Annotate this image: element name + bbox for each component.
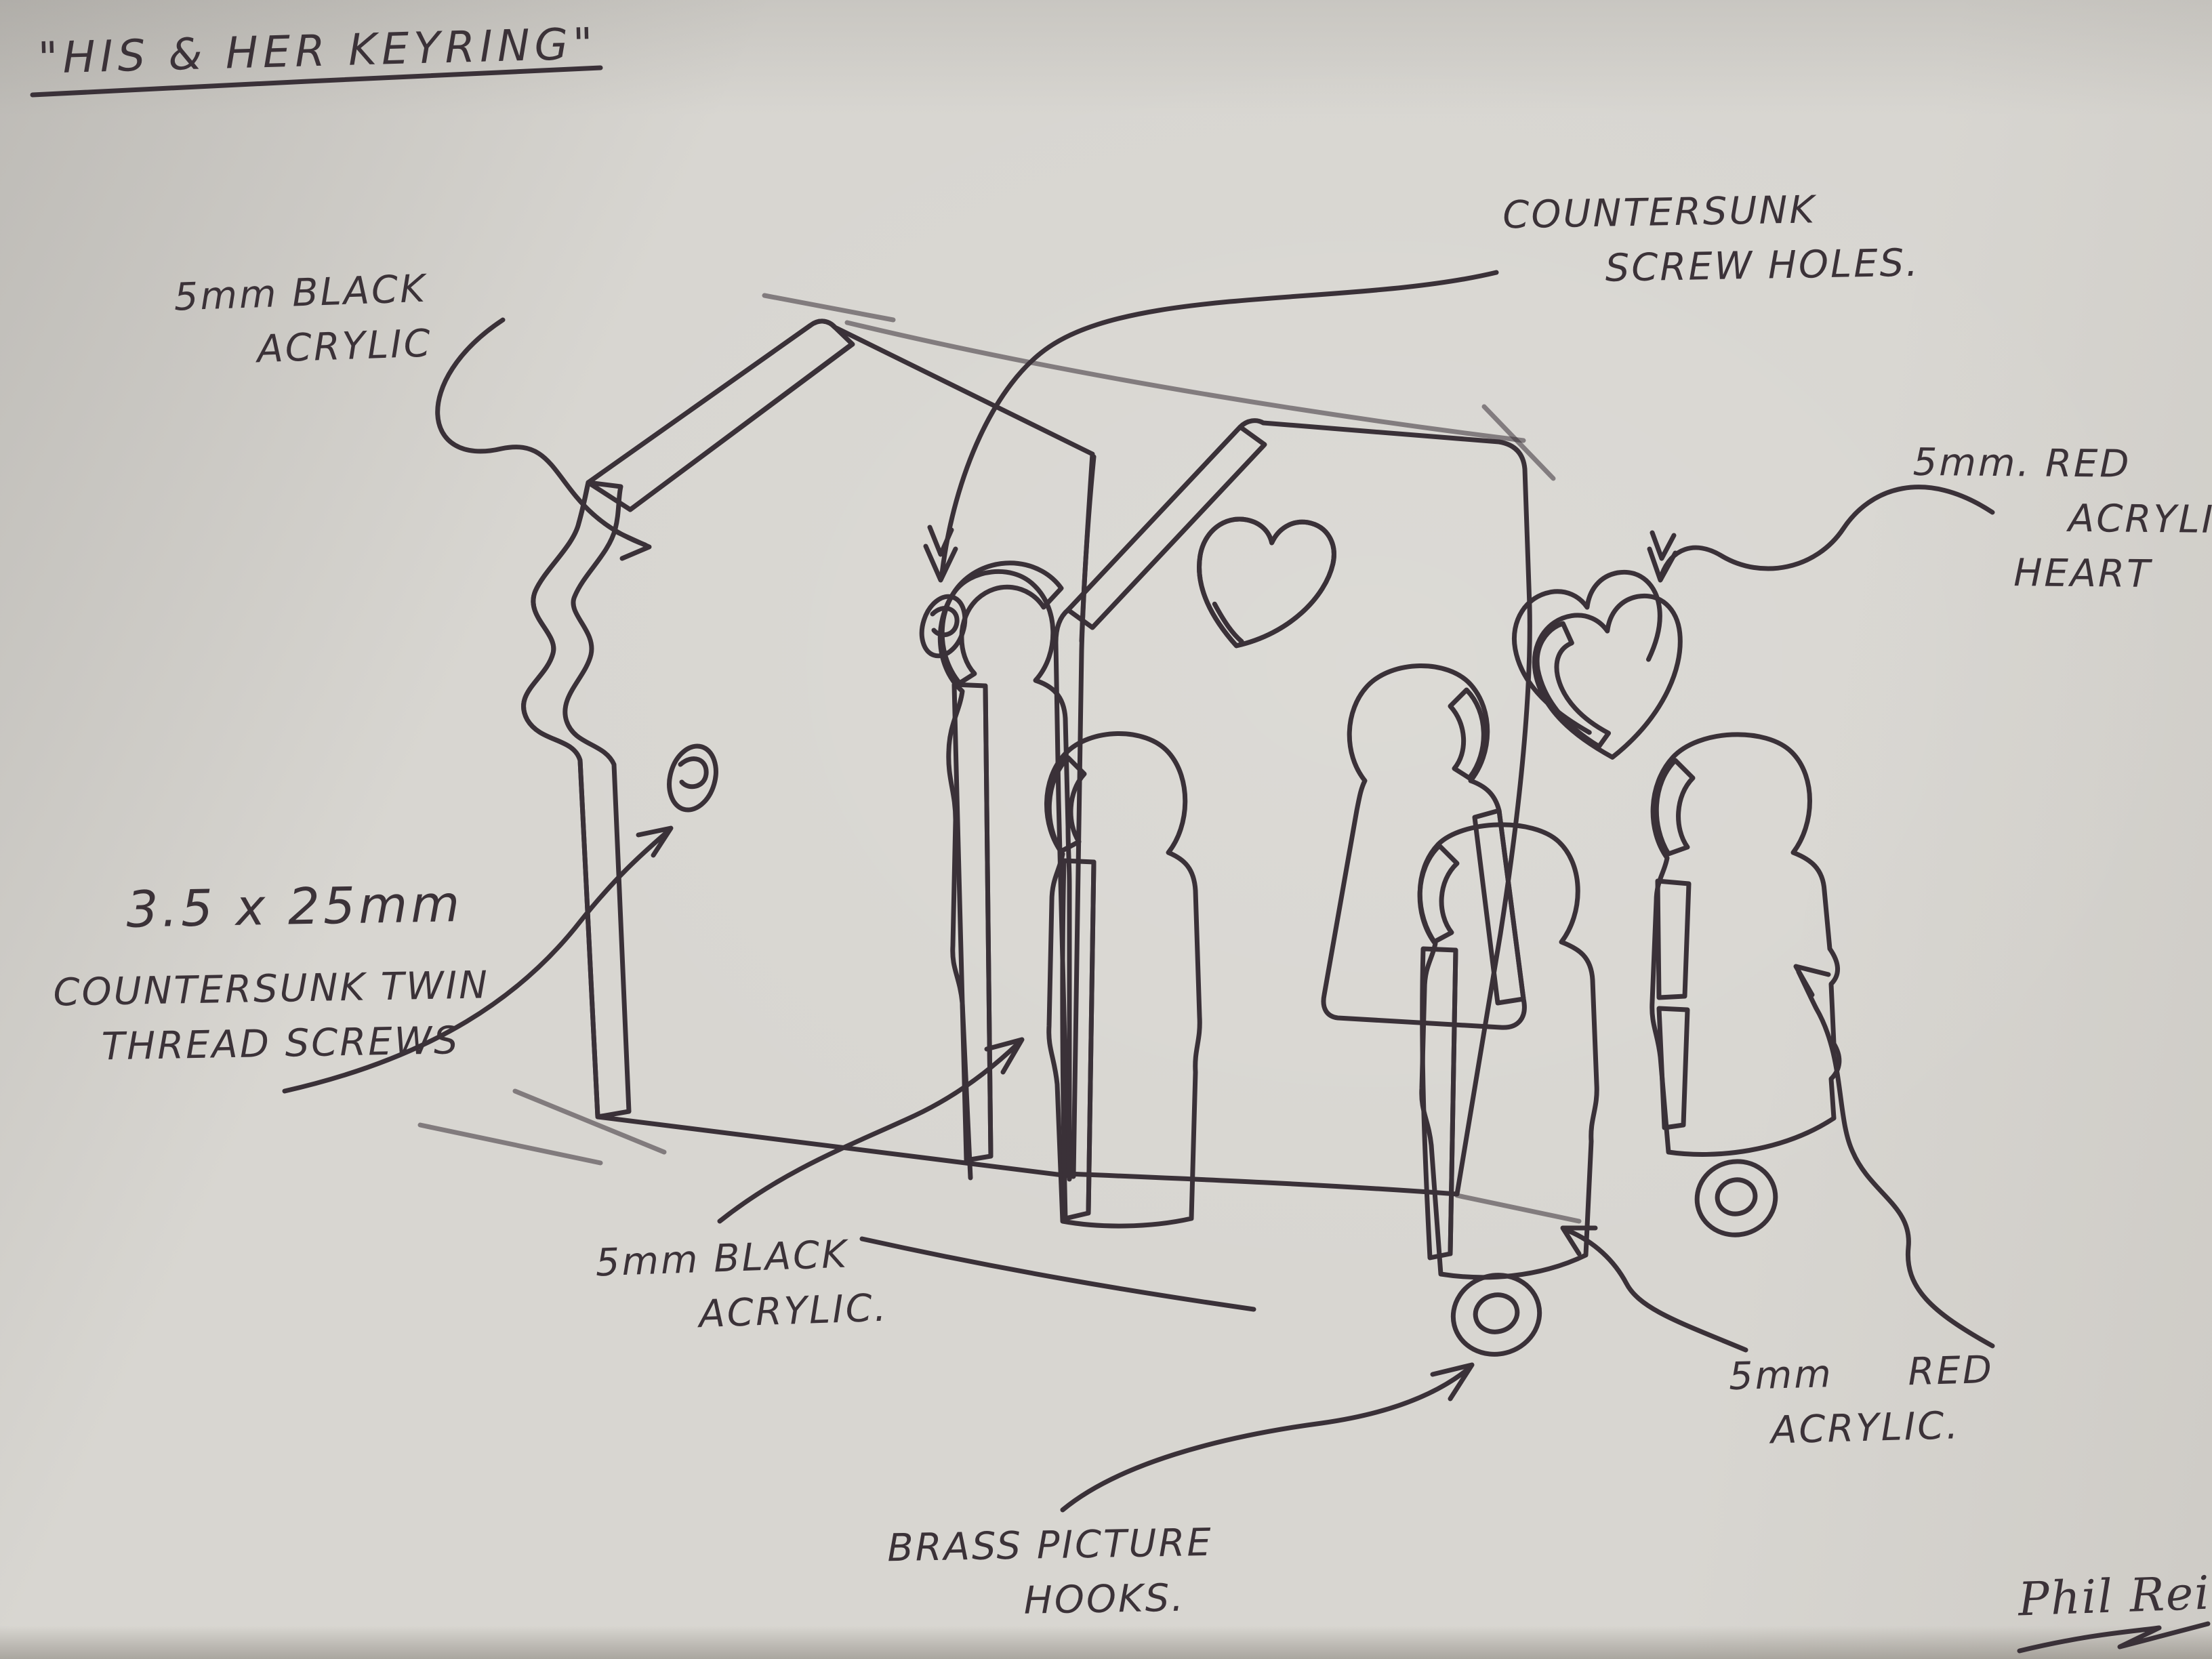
- photo-of-sketch: "HIS & HER KEYRING" 5mm BLACK ACRYLIC CO…: [0, 0, 2212, 1659]
- label-black-acrylic-bottom: 5mm BLACK ACRYLIC.: [594, 1226, 889, 1346]
- hook-ring-his: [1445, 1266, 1548, 1364]
- red-heart-piece: [1509, 567, 1692, 766]
- label-black-acrylic-top: 5mm BLACK ACRYLIC: [173, 261, 433, 380]
- leader-arrows: [285, 272, 1992, 1510]
- label-red-acrylic-keyrings: 5mm RED ACRYLIC.: [1728, 1343, 1996, 1460]
- label-countersunk-screw-holes: COUNTERSUNK SCREW HOLES.: [1502, 181, 1921, 298]
- arrow-red-acrylic-hers: [1796, 966, 1992, 1346]
- front-house-panel: [1056, 421, 1530, 1194]
- arrow-brass-hooks: [1063, 1365, 1472, 1510]
- label-countersunk-twin-thread-screws: 3.5 x 25mm COUNTERSUNK TWIN THREAD SCREW…: [51, 867, 491, 1076]
- hook-ring-hers: [1690, 1154, 1782, 1242]
- arrow-red-acrylic-his: [1563, 1228, 1746, 1350]
- his-keyring-figure: [1420, 825, 1597, 1364]
- screw-hole-left: [662, 741, 723, 815]
- signature: Phil Reilly: [2017, 1559, 2212, 1635]
- label-brass-picture-hooks: BRASS PICTURE HOOKS.: [887, 1515, 1214, 1631]
- arrow-black-acrylic-bottom: [720, 1040, 1022, 1221]
- man-cutout: [940, 563, 1069, 1179]
- label-red-acrylic-heart: 5mm. RED ACRYLIC HEART: [1912, 435, 2212, 603]
- heart-cutout: [1181, 499, 1341, 663]
